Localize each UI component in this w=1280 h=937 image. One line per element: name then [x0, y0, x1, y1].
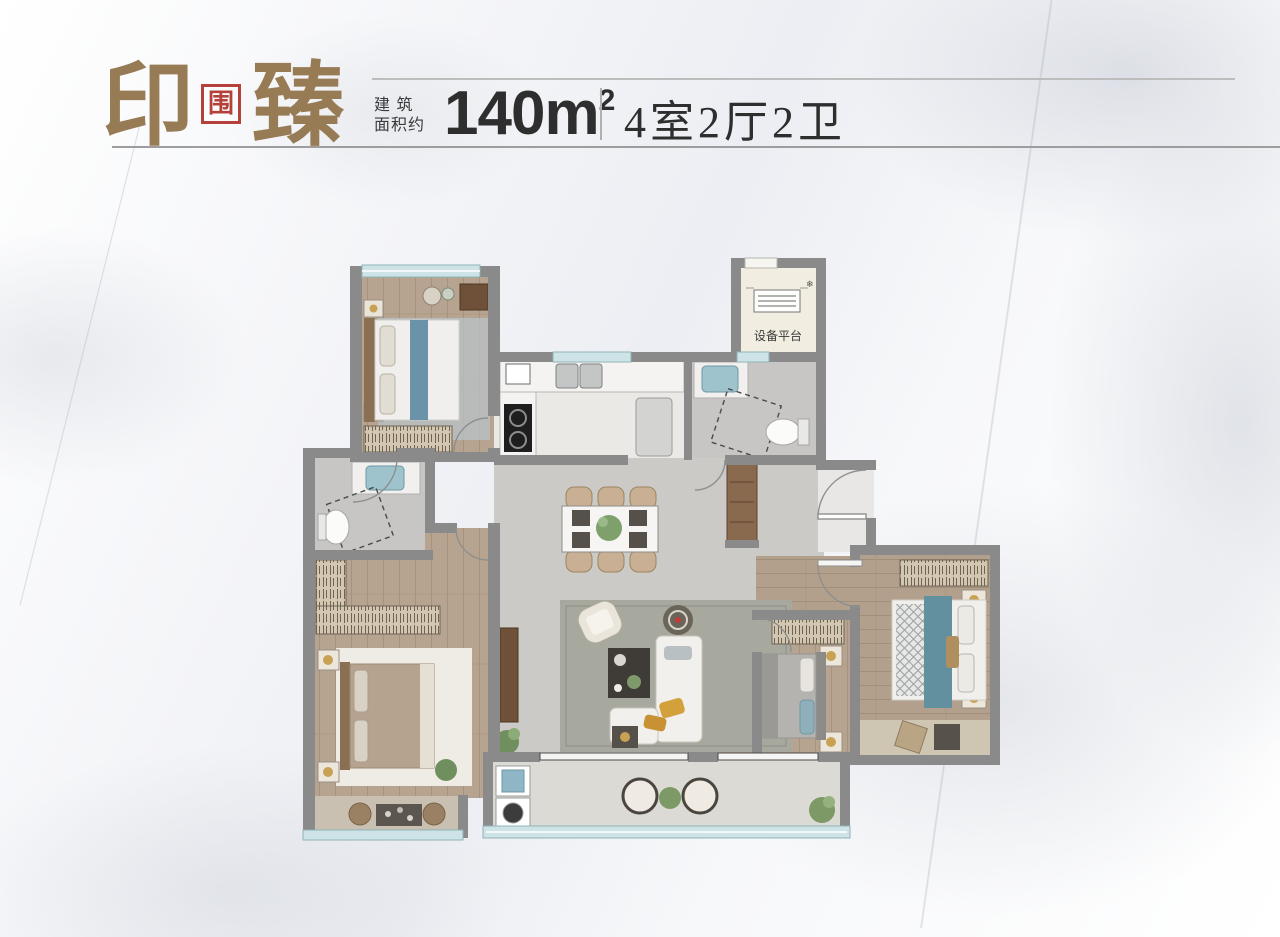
floor-plant [435, 759, 457, 781]
dining-chair [630, 550, 656, 572]
small-appliance [506, 364, 530, 384]
pillow [380, 374, 395, 414]
wall [731, 258, 741, 362]
table-plant [627, 675, 641, 689]
dining-chair [598, 550, 624, 572]
header-divider [600, 88, 602, 140]
pillow [800, 658, 814, 692]
tall-cabinet [500, 628, 518, 722]
refrigerator [636, 398, 672, 456]
area-number: 140m [444, 79, 599, 148]
table-decor [614, 684, 622, 692]
sink-basin [580, 364, 602, 388]
area-value: 140m2 [444, 78, 614, 149]
stove [504, 404, 532, 452]
decor-tray [423, 287, 441, 305]
bed-headboard [816, 652, 826, 740]
wall [990, 545, 1000, 765]
table-decor [614, 654, 626, 666]
wall [818, 460, 876, 470]
title-char-left: 印 [102, 58, 194, 154]
lamp [826, 737, 836, 747]
balcony-plant-leaf [823, 796, 835, 808]
wall [725, 455, 826, 465]
pillow [800, 700, 814, 734]
round-side-table-center [675, 617, 681, 623]
balcony-chair [623, 779, 657, 813]
bay-pouf [349, 803, 371, 825]
wardrobe [900, 560, 988, 586]
pillow [958, 654, 974, 692]
wall [684, 352, 692, 460]
lamp [826, 651, 836, 661]
area-label: 建 筑 面积约 [374, 96, 436, 136]
toilet-bowl [323, 510, 349, 544]
wardrobe [316, 606, 440, 634]
wall [425, 448, 435, 530]
bed-headboard [364, 318, 375, 422]
pillow [958, 606, 974, 644]
decor-plant [442, 288, 454, 300]
area-label-line1: 建 筑 [374, 96, 436, 116]
laundry-basin [502, 770, 524, 792]
shelf [316, 560, 346, 606]
wall [350, 266, 362, 462]
bay-pouf [423, 803, 445, 825]
place-setting [572, 510, 590, 526]
snowflake-icon: ❄ [806, 279, 814, 289]
basin [702, 366, 738, 392]
wall [816, 362, 826, 470]
wall [840, 760, 850, 830]
wall [850, 545, 1000, 555]
entry-floor [818, 468, 874, 552]
room-layout-text: 4室2厅2卫 [624, 86, 846, 150]
pillow [354, 670, 368, 712]
sofa-pillow [664, 646, 692, 660]
wall [752, 610, 860, 620]
pillow [354, 720, 368, 762]
pillow [380, 326, 395, 366]
lamp [370, 305, 378, 313]
sink-basin [556, 364, 578, 388]
wall [303, 448, 315, 838]
place-setting [572, 532, 590, 548]
pebble [397, 807, 403, 813]
window [737, 352, 769, 362]
place-setting [629, 532, 647, 548]
stool-decor [620, 732, 630, 742]
wall [850, 605, 860, 760]
master-bay-window [303, 830, 463, 840]
sliding-door [718, 753, 818, 760]
door-threshold [818, 560, 862, 566]
wall [494, 455, 628, 465]
bay-stool [934, 724, 960, 750]
header: 印 围 臻 建 筑 面积约 140m2 4室2厅2卫 [0, 0, 1280, 170]
dining-chair [566, 550, 592, 572]
place-setting [629, 510, 647, 526]
bed-blanket-fold [762, 654, 778, 738]
lamp [323, 767, 333, 777]
lamp [323, 655, 333, 665]
equipment-platform-label: 设备平台 [754, 328, 802, 343]
toilet-bowl [766, 419, 800, 445]
basin [366, 466, 404, 490]
centerpiece-plant-leaf [598, 517, 608, 527]
bed-runner [410, 320, 428, 420]
sliding-door [540, 753, 688, 760]
cabinet [460, 284, 488, 310]
cushion [946, 636, 959, 668]
wall [303, 550, 433, 560]
area-label-line2: 面积约 [374, 116, 436, 136]
seal-icon: 围 [201, 84, 241, 124]
washer-drum [503, 803, 523, 823]
wall [845, 755, 1000, 765]
coffee-table [608, 648, 650, 698]
wall [752, 652, 762, 760]
bed-quilt [896, 604, 924, 696]
wall [483, 752, 493, 838]
balcony-chair [683, 779, 717, 813]
floor-plant-leaf [508, 728, 520, 740]
wall [816, 258, 826, 362]
bed-headboard [340, 662, 350, 770]
wall [725, 540, 759, 548]
window [553, 352, 631, 362]
pebble [385, 811, 391, 817]
wall [500, 352, 826, 362]
wall [488, 266, 500, 416]
wardrobe [772, 618, 844, 644]
title-char-right: 臻 [252, 58, 344, 154]
opening [745, 258, 777, 268]
toilet-tank [318, 514, 326, 540]
wall [488, 523, 500, 760]
pebble [407, 815, 413, 821]
balcony-plant [659, 787, 681, 809]
wall [688, 752, 718, 762]
toilet-tank [798, 419, 809, 445]
bed-foot-throw [420, 664, 434, 768]
wall [425, 523, 457, 533]
header-bottom-rule [112, 146, 1280, 148]
entry-door-leaf [818, 514, 866, 519]
